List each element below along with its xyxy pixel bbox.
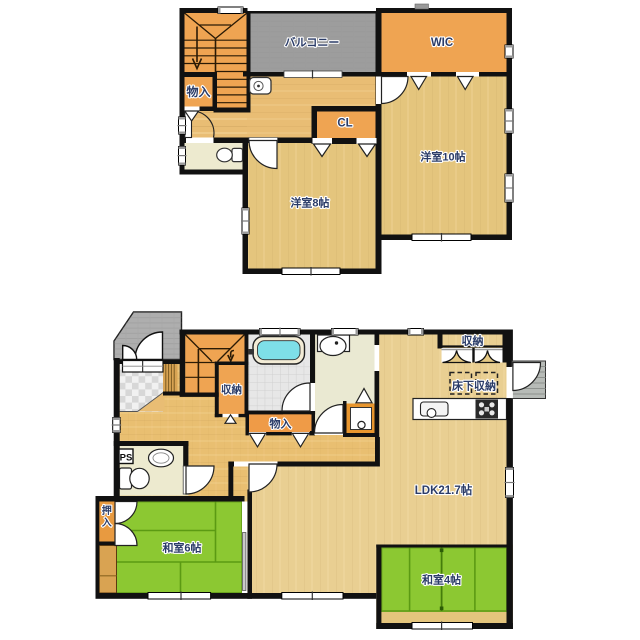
svg-text:和室6帖: 和室6帖 xyxy=(162,541,201,555)
svg-text:収納: 収納 xyxy=(462,334,484,348)
svg-text:入: 入 xyxy=(102,517,112,529)
svg-text:押: 押 xyxy=(102,504,112,517)
svg-text:洋室8帖: 洋室8帖 xyxy=(290,196,329,210)
svg-text:物入: 物入 xyxy=(270,417,292,431)
svg-text:PS: PS xyxy=(120,453,133,464)
svg-text:物入: 物入 xyxy=(186,84,210,99)
svg-text:収納: 収納 xyxy=(221,383,242,396)
svg-text:バルコニー: バルコニー xyxy=(285,36,340,49)
svg-text:WIC: WIC xyxy=(431,37,453,49)
svg-text:和室4帖: 和室4帖 xyxy=(422,573,461,587)
svg-text:LDK21.7帖: LDK21.7帖 xyxy=(415,483,473,497)
svg-text:洋室10帖: 洋室10帖 xyxy=(420,150,465,164)
svg-text:床下収納: 床下収納 xyxy=(452,379,496,393)
svg-text:CL: CL xyxy=(337,118,352,130)
